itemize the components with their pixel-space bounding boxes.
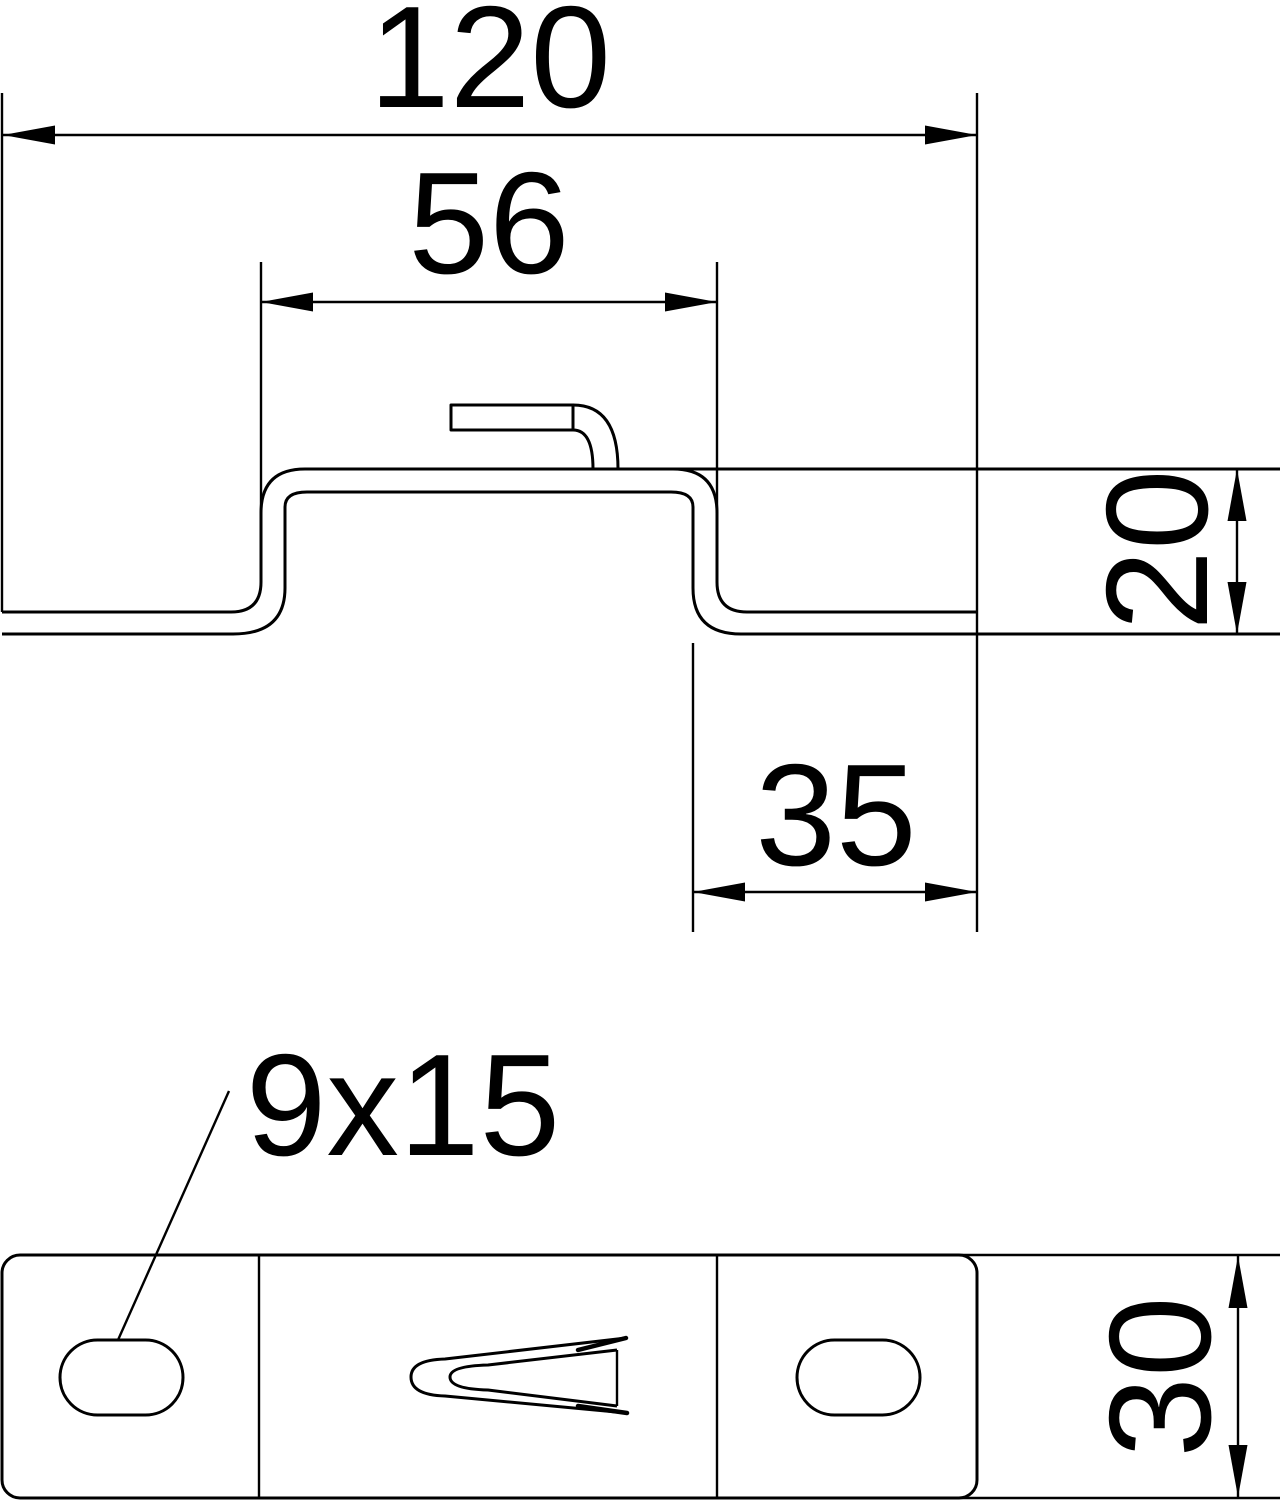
dim-120-label: 120: [369, 0, 611, 138]
tab-profile-rect: [451, 405, 573, 430]
slot-left: [60, 1340, 183, 1415]
plate-outline: [2, 1255, 977, 1498]
arrowhead-120-right: [925, 126, 977, 145]
arrowhead-56-right: [665, 293, 717, 312]
tab-inner-bend: [573, 430, 593, 469]
arrowhead-35-right: [925, 883, 977, 902]
leader-line-slot: [118, 1091, 229, 1340]
arrowhead-120-left: [3, 126, 55, 145]
profile-outer-left-edge: [2, 469, 305, 612]
dimension-profile-height: 20: [1076, 469, 1247, 634]
profile-inner-right-edge: [671, 492, 741, 634]
dimension-raised-width: 56: [261, 142, 717, 513]
dimension-plate-depth: 30: [959, 1255, 1280, 1498]
plan-view: [2, 1255, 977, 1498]
engineering-drawing-canvas: 120 56 20 35: [0, 0, 1280, 1500]
dim-30-label: 30: [1079, 1296, 1241, 1457]
dimension-flange-width: 35: [693, 643, 977, 932]
claw-cutout: [411, 1338, 627, 1413]
dim-20-label: 20: [1076, 469, 1238, 630]
dim-56-label: 56: [408, 142, 569, 304]
arrowhead-56-left: [261, 293, 313, 312]
slot-size-label: 9x15: [246, 1024, 560, 1186]
arrowhead-35-left: [693, 883, 745, 902]
dim-35-label: 35: [755, 734, 916, 896]
label-slot-size: 9x15: [118, 1024, 560, 1340]
profile-outer-right-edge: [673, 469, 977, 612]
tab-outer-bend: [573, 405, 618, 469]
slot-right: [797, 1340, 920, 1415]
